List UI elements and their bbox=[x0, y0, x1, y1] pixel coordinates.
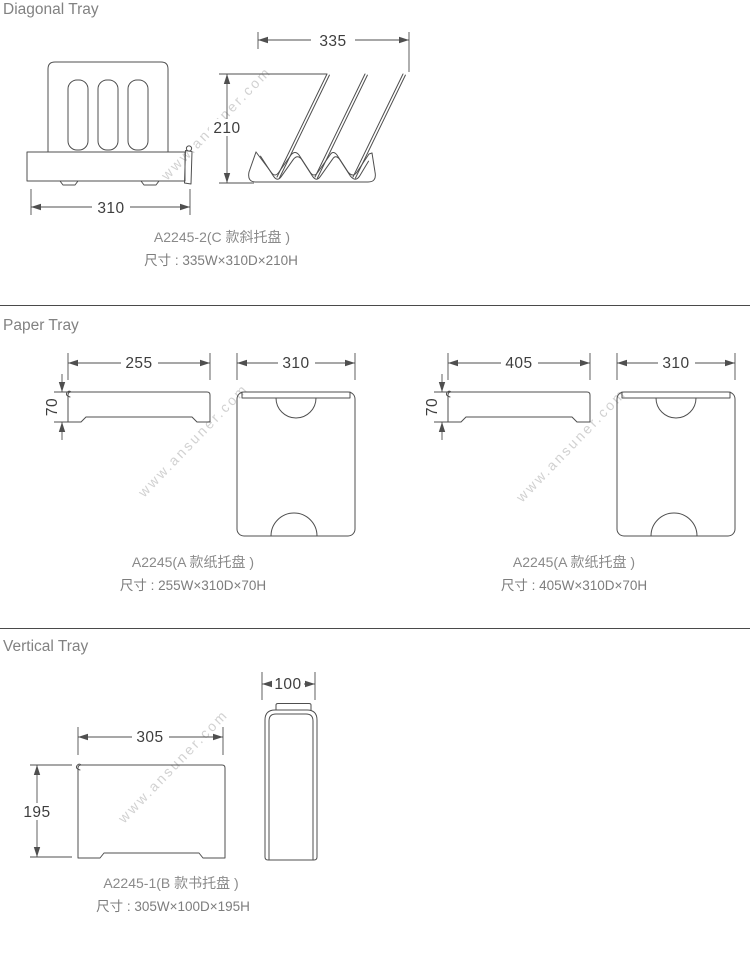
dimension-front-height: 195 bbox=[18, 765, 72, 857]
section-diagonal-tray: 310 335 bbox=[0, 0, 750, 305]
spec-sheet-page: www.ansuner.com www.ansuner.com www.ansu… bbox=[0, 0, 750, 958]
dim-label-top-width: 310 bbox=[282, 355, 309, 372]
dim-label-front-height: 70 bbox=[44, 398, 61, 416]
paper-tray-front-view bbox=[66, 391, 210, 422]
size-caption: 尺寸 : 255W×310D×70H bbox=[120, 574, 266, 595]
model-caption: A2245(A 款纸托盘 ) bbox=[513, 552, 635, 572]
dim-label-front-height: 195 bbox=[23, 804, 50, 821]
model-caption: A2245(A 款纸托盘 ) bbox=[132, 552, 254, 572]
dim-label-front-width: 305 bbox=[136, 729, 163, 746]
dimension-side-width: 100 bbox=[262, 672, 315, 700]
vertical-tray-front-view bbox=[76, 764, 225, 858]
dimension-front-width: 255 bbox=[68, 353, 210, 380]
dim-label-top-width: 310 bbox=[662, 355, 689, 372]
diagonal-tray-front-view bbox=[27, 62, 192, 185]
dim-label-front-width: 310 bbox=[97, 200, 124, 217]
dimension-top-width: 310 bbox=[237, 353, 355, 380]
size-caption: 尺寸 : 335W×310D×210H bbox=[144, 249, 298, 270]
section-title: Paper Tray bbox=[3, 317, 79, 335]
section-title: Diagonal Tray bbox=[3, 1, 99, 19]
vertical-tray-side-view bbox=[265, 704, 317, 861]
section-title: Vertical Tray bbox=[3, 638, 88, 656]
paper-tray-large: 405 70 310 bbox=[424, 353, 735, 536]
finish-mark bbox=[76, 764, 81, 770]
paper-tray-top-view bbox=[237, 392, 355, 536]
dim-label-front-width: 255 bbox=[125, 355, 152, 372]
size-caption: 尺寸 : 305W×100D×195H bbox=[96, 895, 250, 916]
diagonal-tray-side-view bbox=[249, 74, 406, 182]
model-label: A2245(A 款纸托盘 ) bbox=[132, 554, 254, 570]
section-paper-tray: 255 70 310 bbox=[0, 306, 750, 628]
size-label: 尺寸 : 405W×310D×70H bbox=[501, 578, 647, 593]
dimension-side-height: 210 bbox=[209, 74, 327, 183]
dimension-front-width: 305 bbox=[78, 727, 223, 755]
paper-tray-top-view bbox=[617, 392, 735, 536]
model-label: A2245(A 款纸托盘 ) bbox=[513, 554, 635, 570]
dimension-front-width: 310 bbox=[31, 189, 190, 217]
size-label: 尺寸 : 305W×100D×195H bbox=[96, 899, 250, 914]
dimension-front-height: 70 bbox=[44, 374, 70, 440]
size-label: 尺寸 : 335W×310D×210H bbox=[144, 253, 298, 268]
section-vertical-tray: 100 305 195 bbox=[0, 629, 750, 958]
dimension-top-width: 310 bbox=[617, 353, 735, 380]
model-label: A2245-1(B 款书托盘 ) bbox=[103, 875, 238, 891]
dim-label-front-width: 405 bbox=[505, 355, 532, 372]
model-caption: A2245-2(C 款斜托盘 ) bbox=[154, 227, 290, 247]
dim-label-side-width: 100 bbox=[274, 676, 301, 693]
paper-tray-small: 255 70 310 bbox=[44, 353, 355, 536]
size-caption: 尺寸 : 405W×310D×70H bbox=[501, 574, 647, 595]
size-label: 尺寸 : 255W×310D×70H bbox=[120, 578, 266, 593]
dim-label-side-height: 210 bbox=[213, 120, 240, 137]
dimension-front-width: 405 bbox=[448, 353, 590, 380]
model-label: A2245-2(C 款斜托盘 ) bbox=[154, 229, 290, 245]
diagonal-tray-drawing: 310 335 bbox=[0, 0, 750, 305]
dimension-front-height: 70 bbox=[424, 374, 450, 440]
dimension-side-width: 335 bbox=[258, 31, 409, 72]
paper-tray-front-view bbox=[446, 391, 590, 422]
dim-label-front-height: 70 bbox=[424, 398, 441, 416]
dim-label-side-width: 335 bbox=[319, 33, 346, 50]
model-caption: A2245-1(B 款书托盘 ) bbox=[103, 873, 238, 893]
